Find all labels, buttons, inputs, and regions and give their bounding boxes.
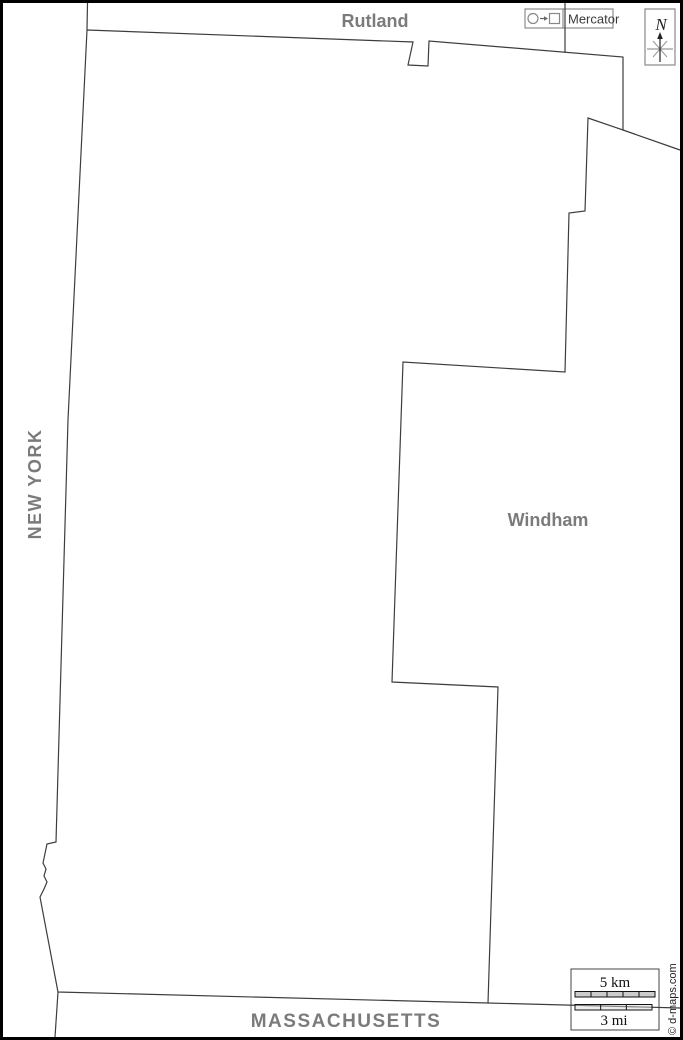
windham-north-line-east <box>623 130 680 150</box>
label-new-york: NEW YORK <box>25 429 45 540</box>
projection-legend: Mercator <box>525 9 620 28</box>
frame-top <box>0 0 683 3</box>
new-york-massachusetts-line-south <box>55 992 58 1037</box>
map-page: Mercator N 5 km 3 mi © d-maps.com Rutlan… <box>0 0 683 1040</box>
mi-scale-bar <box>575 1005 652 1011</box>
north-label: N <box>654 15 668 34</box>
scale-km-label: 5 km <box>600 975 631 991</box>
credit-text: © d-maps.com <box>667 963 679 1035</box>
scale-mi-label: 3 mi <box>600 1013 627 1029</box>
north-indicator: N <box>645 9 675 65</box>
label-massachusetts: MASSACHUSETTS <box>251 1011 442 1032</box>
label-windham: Windham <box>508 510 589 530</box>
km-scale-bar <box>575 992 655 998</box>
label-rutland: Rutland <box>342 11 409 31</box>
frame-left <box>0 0 3 1040</box>
projection-label: Mercator <box>568 12 620 27</box>
ny-vt-line-north <box>87 3 88 30</box>
map-image: Mercator N 5 km 3 mi © d-maps.com Rutlan… <box>0 0 683 1040</box>
